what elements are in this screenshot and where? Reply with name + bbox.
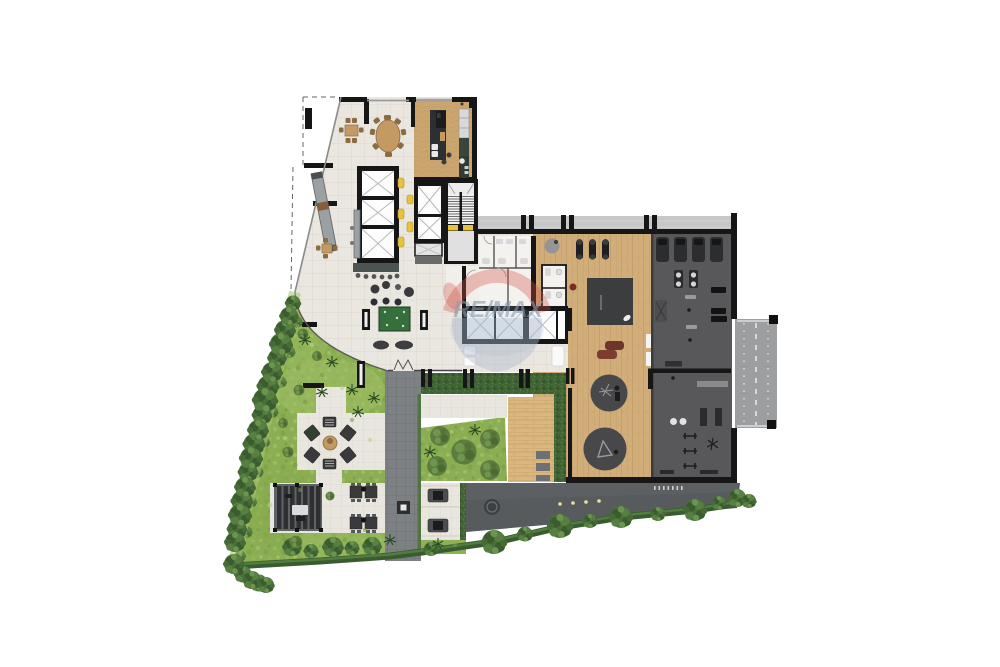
- svg-text:RE/MAX: RE/MAX: [453, 296, 544, 322]
